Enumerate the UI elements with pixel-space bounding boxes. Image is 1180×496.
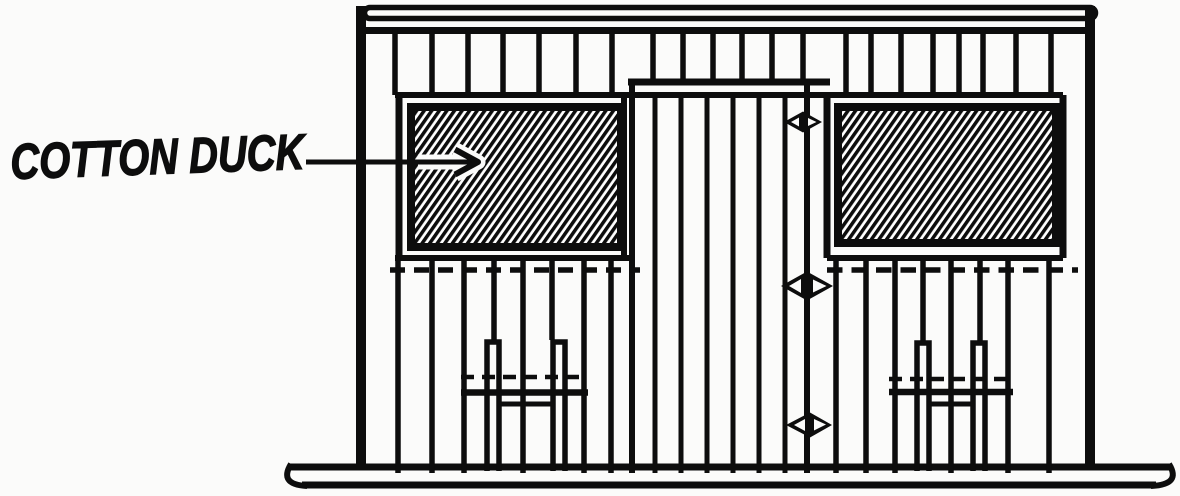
svg-text:COTTON DUCK: COTTON DUCK	[9, 124, 308, 190]
